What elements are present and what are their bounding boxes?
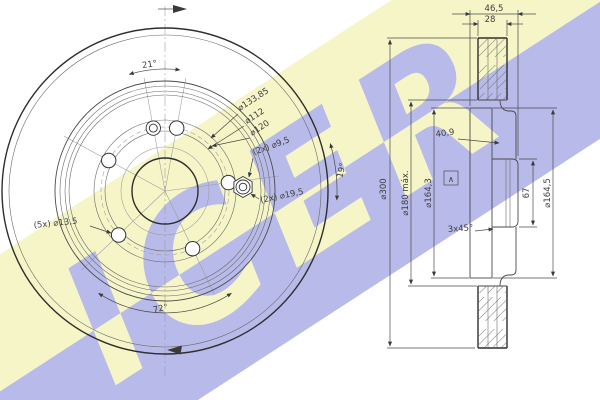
dim-dia-max-label: ⌀180 máx. <box>401 170 411 215</box>
dim-holes-19-5: (2x) ⌀19,5 <box>260 187 305 206</box>
pin-hole <box>146 121 160 135</box>
hat-flange <box>470 108 492 278</box>
dim-chamfer-label: 3x45° <box>448 223 474 235</box>
rotation-arrow-top <box>158 5 187 13</box>
screw-hole-callouts: (2x) ⌀9,5 (2x) ⌀19,5 <box>249 135 304 206</box>
dim-height-67-label: 67 <box>522 188 532 199</box>
dim-vane: 40,9 <box>435 127 499 143</box>
hat-drum <box>500 100 516 286</box>
dim-chamfer: 3x45° <box>448 223 493 235</box>
dim-thickness-label: 28 <box>485 15 496 25</box>
dim-dia-164-3-label: ⌀164,3 <box>424 178 434 207</box>
dim-arc-21 <box>129 69 180 74</box>
dim-angle-bottom: 72° <box>152 303 169 316</box>
front-view: 21° 72° 19° ⌀133,85 ⌀112 ⌀120 (2x) ⌀9,5 <box>2 5 349 378</box>
bolt-hole-callout: (5x) ⌀13,5 <box>33 216 111 233</box>
brake-disc-technical-drawing: ICER ICER <box>0 0 600 400</box>
dim-vane-label: 40,9 <box>435 127 455 140</box>
dim-dia-outer-label: ⌀300 <box>379 178 389 199</box>
dim-dia-flange: ⌀133,85 <box>236 86 271 113</box>
dim-width-total-label: 46,5 <box>485 4 504 14</box>
datum-symbol-glyph: ∧ <box>448 175 454 185</box>
dim-angle-pin: 19° <box>335 162 348 179</box>
dim-holes-9-5: (2x) ⌀9,5 <box>252 135 292 158</box>
dim-height-67: 67 <box>519 159 537 227</box>
dim-dia-max: ⌀180 máx. <box>401 100 477 286</box>
pilot-collar <box>492 159 518 227</box>
datum-symbol: ∧ <box>444 171 458 185</box>
dim-holes-13-5: (5x) ⌀13,5 <box>33 216 78 231</box>
section-view: 46,5 28 40,9 3x45° ∧ <box>379 4 557 348</box>
drawing-canvas: 21° 72° 19° ⌀133,85 ⌀112 ⌀120 (2x) ⌀9,5 <box>0 0 600 400</box>
dim-thickness: 28 <box>462 15 523 36</box>
dim-dia-164-5-label: ⌀164,5 <box>543 178 553 207</box>
friction-ring-hatch <box>479 39 506 347</box>
